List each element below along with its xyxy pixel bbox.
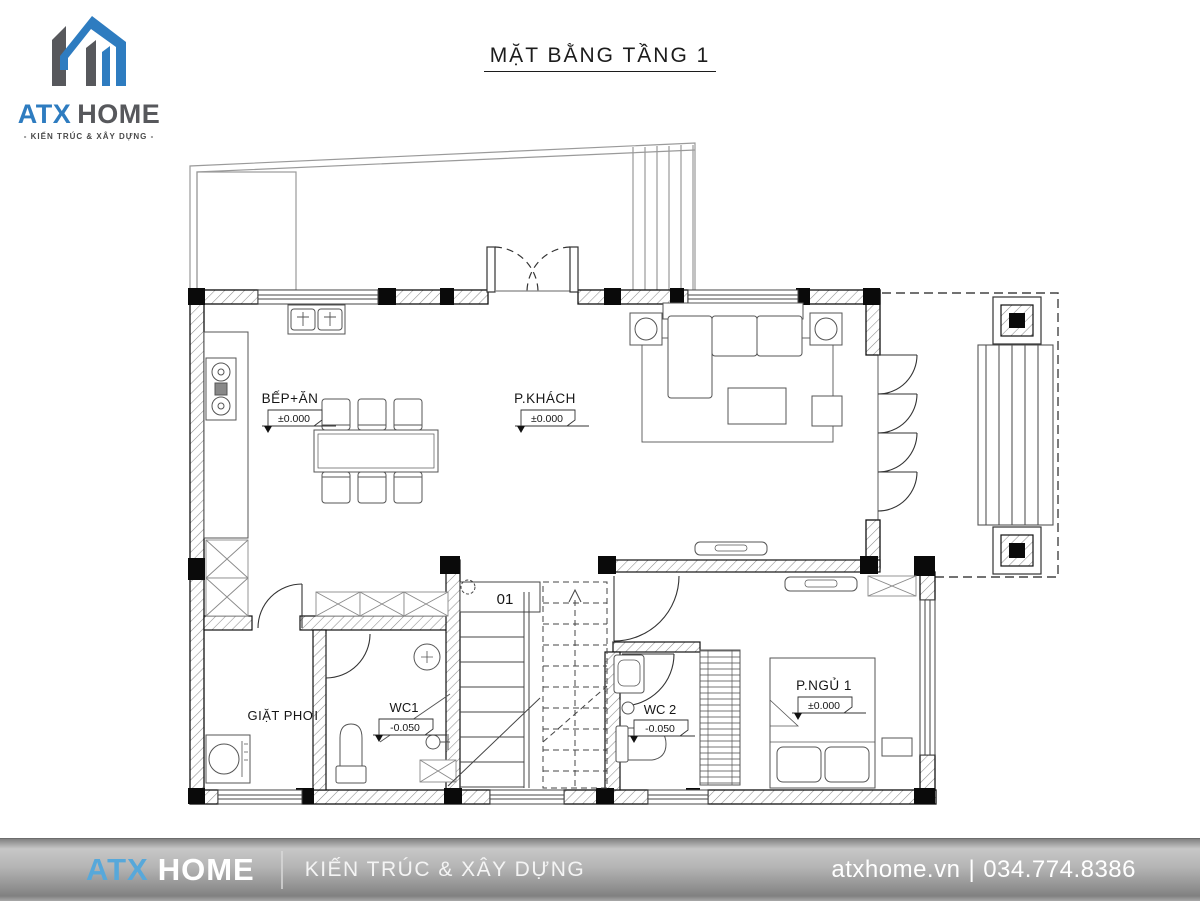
svg-text:-0.050: -0.050 bbox=[390, 722, 420, 734]
cabinet-strip-above-wc1 bbox=[316, 592, 448, 616]
entry-double-door bbox=[487, 247, 578, 292]
tall-cabinet-left bbox=[206, 540, 248, 616]
room-label-laundry: GIẶT PHƠI bbox=[247, 708, 318, 723]
tv-console-bedroom bbox=[785, 577, 857, 591]
room-label-living: P.KHÁCH bbox=[514, 391, 576, 406]
wc1-toilet bbox=[336, 724, 366, 783]
nightstand bbox=[882, 738, 912, 756]
wc2-mixer bbox=[622, 702, 634, 714]
svg-text:±0.000: ±0.000 bbox=[278, 413, 310, 425]
dining-table bbox=[314, 430, 438, 472]
stair-break-line bbox=[448, 698, 540, 786]
porch-column-top bbox=[993, 297, 1041, 344]
staircase bbox=[448, 580, 607, 788]
sofa bbox=[663, 303, 803, 398]
closet bbox=[700, 650, 740, 785]
svg-text:±0.000: ±0.000 bbox=[531, 413, 563, 425]
bedroom-furniture bbox=[700, 650, 912, 788]
living-window bbox=[688, 290, 798, 304]
room-label-kitchen: BẾP+ĂN bbox=[262, 391, 319, 406]
living-folding-doors bbox=[878, 355, 917, 520]
svg-text:±0.000: ±0.000 bbox=[808, 700, 840, 712]
tv-console-living bbox=[695, 542, 767, 555]
wc1-mixer bbox=[426, 735, 440, 749]
footer-contact: atxhome.vn|034.774.8386 bbox=[827, 856, 1140, 884]
laundry-fixtures bbox=[206, 735, 250, 783]
bedroom-corner-cabinet bbox=[868, 576, 916, 596]
bedroom-east-window bbox=[920, 600, 935, 755]
stair-upper-flight-dashed bbox=[543, 582, 607, 788]
footer-banner: ATXHOME KIẾN TRÚC & XÂY DỰNG atxhome.vn|… bbox=[0, 838, 1200, 901]
kitchen-window bbox=[258, 290, 378, 304]
hall-window bbox=[490, 790, 564, 804]
wc1-low-cabinet bbox=[420, 760, 456, 782]
coffee-table bbox=[728, 388, 786, 424]
wc1-door bbox=[326, 634, 370, 678]
living-furniture bbox=[630, 303, 857, 591]
laundry-door bbox=[258, 584, 302, 628]
pillow bbox=[825, 747, 869, 782]
svg-text:-0.050: -0.050 bbox=[645, 723, 675, 735]
stair-number-label: 01 bbox=[497, 591, 514, 608]
kitchen-fixtures bbox=[204, 305, 438, 538]
cooktop bbox=[206, 358, 236, 420]
side-table-right bbox=[810, 313, 842, 345]
level-tag-living: ±0.000 bbox=[515, 410, 589, 433]
pillow bbox=[777, 747, 821, 782]
room-label-wc2: WC 2 bbox=[644, 702, 677, 717]
floor-plan-drawing: BẾP+ĂN ±0.000 P.KHÁCH ±0.000 GIẶT PHƠI W… bbox=[0, 0, 1200, 900]
footer-phone: 034.774.8386 bbox=[983, 856, 1136, 883]
room-label-bedroom1: P.NGỦ 1 bbox=[796, 678, 852, 693]
bedroom-door bbox=[614, 576, 679, 641]
laundry-window bbox=[218, 790, 302, 804]
porch-column-bottom bbox=[993, 527, 1041, 574]
footer-brand-home: HOME bbox=[158, 852, 255, 887]
washing-machine bbox=[206, 735, 250, 783]
porch-steps bbox=[978, 345, 1053, 525]
footer-divider bbox=[281, 851, 283, 889]
kitchen-sink bbox=[288, 305, 345, 334]
wc2-basin bbox=[614, 655, 644, 693]
corner-table bbox=[812, 396, 842, 426]
side-table-left bbox=[630, 313, 662, 345]
footer-brand: ATXHOME KIẾN TRÚC & XÂY DỰNG bbox=[86, 851, 585, 889]
room-label-wc1: WC1 bbox=[390, 700, 419, 715]
roof-canopy-outline bbox=[190, 143, 695, 290]
page: { "header": { "title": "MẶT BẰNG TẦNG 1"… bbox=[0, 0, 1200, 900]
footer-brand-atx: ATX bbox=[86, 852, 149, 887]
bedroom-south-window bbox=[648, 790, 708, 804]
footer-tagline: KIẾN TRÚC & XÂY DỰNG bbox=[305, 858, 586, 882]
footer-website: atxhome.vn bbox=[831, 856, 960, 883]
porch-terrace bbox=[882, 293, 1058, 577]
footer-separator: | bbox=[968, 856, 975, 883]
